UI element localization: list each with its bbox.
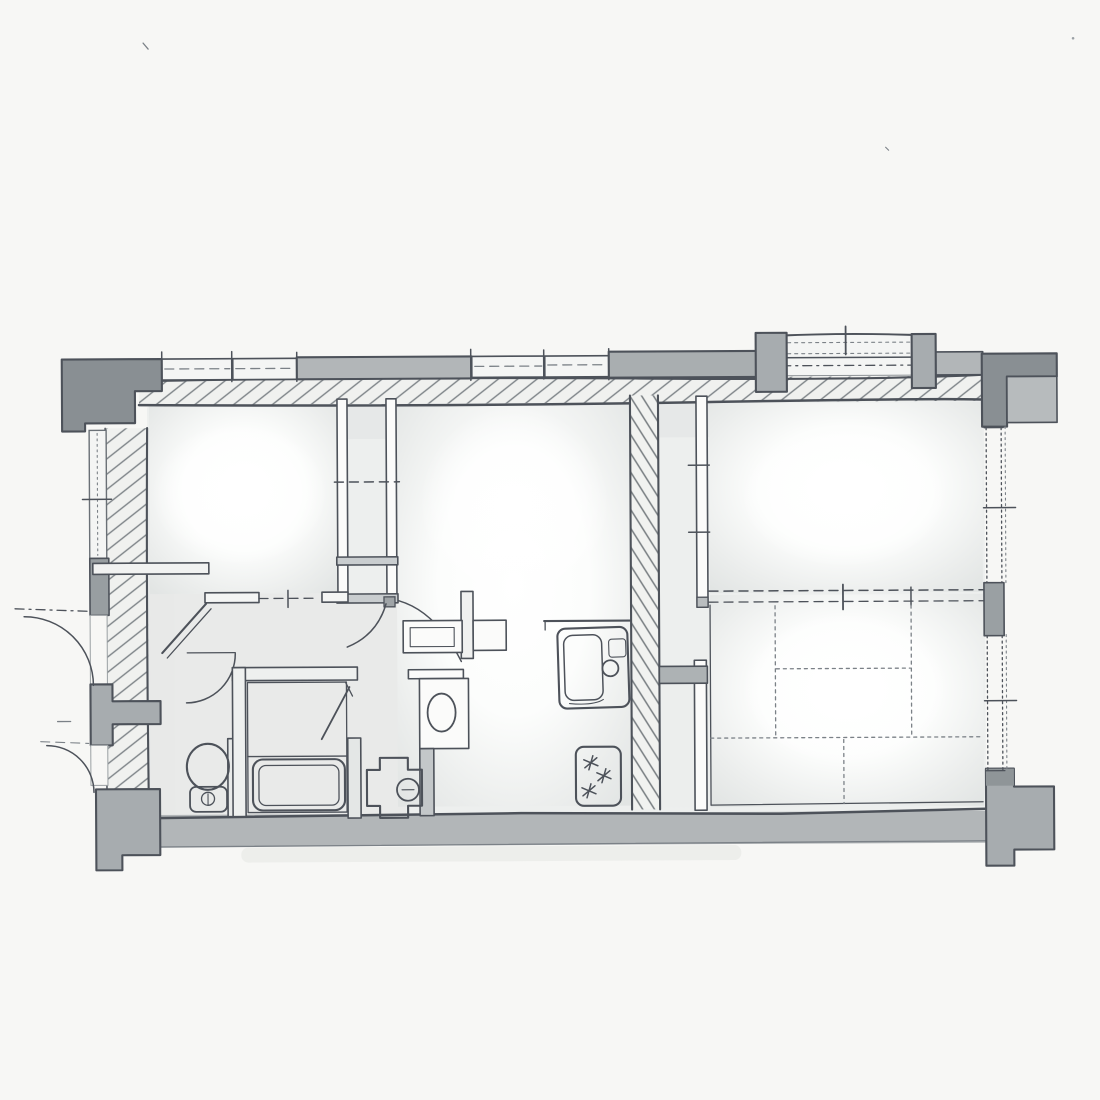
north-window-4	[545, 356, 609, 377]
refrigerator-recess-band	[659, 666, 707, 683]
sketch-page	[0, 0, 1100, 1100]
bedroom-south-wall-a	[205, 593, 259, 603]
service-door-opening	[91, 745, 108, 785]
balcony-post-left	[756, 333, 787, 392]
west-wall-hatched	[105, 428, 149, 824]
center-east-wall-upper	[696, 396, 708, 607]
bath-north-wall	[232, 667, 357, 681]
cabinet-right	[473, 620, 506, 650]
balcony-post-right	[912, 334, 936, 388]
cabinet-left	[403, 620, 462, 652]
bath-east-wall	[348, 738, 361, 818]
service-duct-hatched	[630, 395, 660, 809]
bedroom-west-stub-wall	[93, 563, 209, 575]
room-washes	[147, 400, 986, 863]
closet-bar-1	[337, 557, 398, 565]
floor-plan-sketch	[0, 0, 1100, 1100]
column-top-right-pad	[1007, 376, 1057, 422]
bath-west-wall	[232, 668, 246, 817]
bedroom-south-wall-b	[322, 592, 348, 602]
north-solid-strip-1	[297, 356, 472, 379]
washbasin-back-wall	[408, 669, 463, 678]
north-solid-strip-2	[609, 351, 757, 378]
closet-wall-right	[386, 399, 397, 602]
closet-wall-left	[337, 399, 348, 602]
north-solid-strip-3	[936, 352, 983, 375]
east-wall-pier	[984, 583, 1004, 636]
drawing	[0, 0, 1100, 1100]
